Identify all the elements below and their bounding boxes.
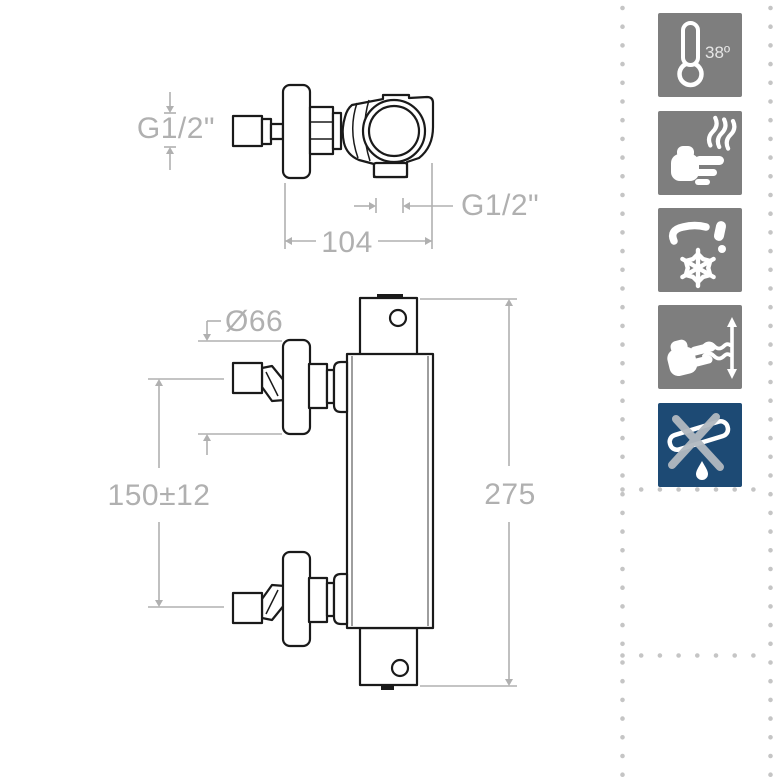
dim-label-flange-diameter: Ø66: [225, 305, 283, 338]
snowflake-icon: [682, 250, 713, 286]
temperature-value-label: 38º: [705, 43, 730, 62]
front-bottom-hole: [392, 660, 408, 676]
dim-label-inlet-thread: G1/2": [137, 112, 215, 145]
front-lower-flange: [283, 552, 310, 646]
anti-scald-hand-heat-icon: [658, 111, 742, 195]
front-lower-fitting: [233, 593, 262, 623]
top-inlet-fitting: [233, 116, 262, 146]
front-upper-flange: [283, 340, 310, 434]
dim-label-outlet-thread: G1/2": [461, 189, 539, 222]
front-valve-body: [347, 354, 433, 628]
no-bath-spout-crossed-icon: [658, 403, 742, 487]
feature-tile-thermostatic-38: 38º: [658, 13, 742, 97]
feature-tile-flow-adjust: [658, 305, 742, 389]
front-bottom-cap: [360, 628, 417, 685]
dim-label-inlet-distance: 150±12: [108, 479, 211, 512]
top-wall-flange: [283, 85, 310, 178]
page: { "css_vars": { "line": "#1a1a1a", "dim"…: [0, 0, 777, 777]
dim-label-overall-height: 275: [484, 478, 536, 511]
front-lower-elbow: [262, 585, 285, 620]
cross-out-icon: [672, 417, 720, 467]
flow-adjust-hand-arrows-icon: [658, 305, 742, 389]
frost-protection-tap-snowflake-icon: [658, 208, 742, 292]
feature-tile-anti-scald: [658, 111, 742, 195]
front-top-cap: [360, 298, 417, 356]
front-top-hole: [390, 310, 406, 326]
front-upper-fitting: [233, 363, 262, 393]
feature-tile-no-bath-spout: [658, 403, 742, 487]
top-hex-nut: [310, 107, 333, 154]
thermometer-38-icon: 38º: [658, 13, 742, 97]
dim-label-overall-width: 104: [321, 226, 373, 259]
product-drawing-sheet: G1/2" G1/2" 104 Ø66: [0, 0, 777, 777]
front-upper-elbow: [262, 366, 285, 401]
front-view: [233, 294, 433, 690]
feature-tile-frost-protection: [658, 208, 742, 292]
top-outlet: [374, 163, 407, 177]
water-drop-icon: [696, 461, 708, 480]
top-view: [233, 85, 433, 178]
